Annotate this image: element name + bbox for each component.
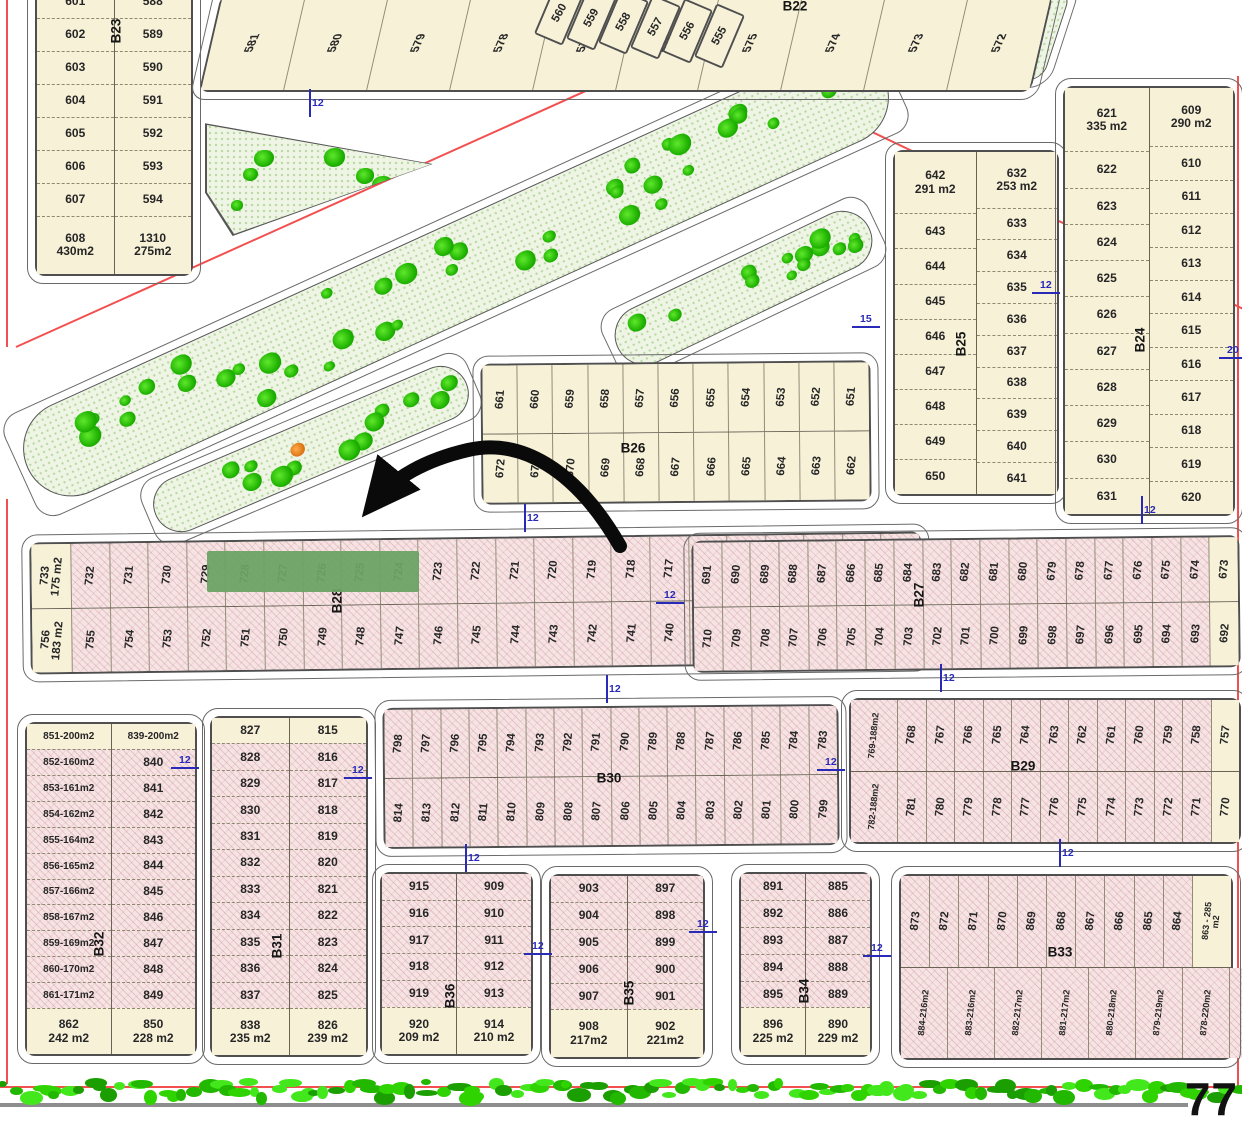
- plot-number: 690: [729, 564, 743, 584]
- plot-number: 749: [316, 627, 330, 647]
- plot-748: 748: [341, 605, 380, 669]
- plot-901: 901: [628, 983, 704, 1010]
- plot-number: 870: [996, 911, 1010, 931]
- plot-853: 853-161m2: [27, 775, 111, 801]
- dimension-label: 12: [352, 764, 364, 776]
- plot-column: 5885895905915925935941310 275m2: [114, 0, 192, 274]
- dimension-line: [940, 664, 942, 692]
- tree-icon: [831, 241, 848, 258]
- dimension-label: 12: [1144, 504, 1156, 516]
- block-B33: 873872871870869868867866865864863 - 285 …: [899, 874, 1233, 1060]
- plot-832: 832: [212, 849, 289, 875]
- plot-828: 828: [212, 743, 289, 769]
- plot-870: 870: [988, 876, 1017, 967]
- plot-694: 694: [1152, 602, 1181, 666]
- plot-881: 881-217m2: [1041, 968, 1088, 1059]
- plot-673: 673: [1209, 537, 1238, 601]
- plot-number: 872: [937, 911, 951, 931]
- plot-685: 685: [864, 541, 893, 605]
- plot-number: 789: [646, 732, 660, 752]
- dimension-line: [1032, 292, 1060, 294]
- plot-number: 697: [1074, 625, 1088, 645]
- plot-number: 795: [476, 733, 490, 753]
- plot-851: 851-200m2: [27, 724, 111, 749]
- hedge-foliage: [841, 1084, 854, 1091]
- plot-746: 746: [418, 604, 457, 668]
- tree-icon: [640, 173, 665, 197]
- plot-701: 701: [951, 604, 980, 668]
- plot-645: 645: [895, 284, 976, 319]
- plot-779: 779: [954, 772, 983, 843]
- plot-798: 798: [384, 710, 412, 778]
- plot-761: 761: [1097, 700, 1126, 771]
- plot-643: 643: [895, 213, 976, 248]
- hedge-foliage: [879, 1081, 894, 1095]
- plot-702: 702: [923, 605, 952, 669]
- plot-number: 659: [563, 389, 577, 409]
- plot-914: 914 210 m2: [457, 1007, 531, 1054]
- dimension-line: [689, 931, 717, 933]
- plot-782: 782-188m2: [851, 772, 897, 843]
- plot-839: 839-200m2: [112, 724, 196, 749]
- plot-number: 679: [1045, 561, 1059, 581]
- plot-776: 776: [1040, 772, 1069, 843]
- plot-623: 623: [1065, 188, 1149, 224]
- plot-628: 628: [1065, 369, 1149, 405]
- plot-number: 654: [739, 387, 753, 407]
- plot-number: 759: [1161, 725, 1175, 745]
- plot-number: 560: [550, 2, 570, 25]
- hedge-foliage: [404, 1084, 415, 1099]
- plot-number: 691: [701, 564, 715, 584]
- tree-icon: [666, 306, 684, 323]
- plot-number: 667: [669, 457, 683, 477]
- plot-757: 757: [1211, 700, 1240, 771]
- plot-number: 776: [1047, 797, 1061, 817]
- plot-number: 863 - 285 m2: [1201, 901, 1224, 941]
- plot-788: 788: [667, 707, 696, 775]
- plot-862: 862 242 m2: [27, 1008, 111, 1054]
- plot-687: 687: [807, 541, 836, 605]
- plot-number: 744: [509, 625, 523, 645]
- tree-icon: [372, 275, 396, 298]
- plot-660: 660: [517, 365, 553, 433]
- plot-833: 833: [212, 876, 289, 902]
- plot-617: 617: [1150, 380, 1234, 413]
- plot-631: 631: [1065, 478, 1149, 514]
- plot-657: 657: [622, 364, 658, 432]
- dimension-line: [606, 675, 608, 703]
- plot-number: 559: [582, 6, 602, 29]
- plot-number: 794: [505, 733, 519, 753]
- plot-758: 758: [1182, 700, 1211, 771]
- plot-number: 701: [959, 626, 973, 646]
- plot-847: 847: [112, 930, 196, 956]
- plot-number: 669: [599, 457, 613, 477]
- plot-768: 768: [897, 700, 926, 771]
- plot-813: 813: [412, 778, 441, 846]
- plot-678: 678: [1065, 539, 1094, 603]
- hedge-foliage: [473, 1092, 484, 1101]
- plot-808: 808: [554, 777, 583, 845]
- dimension-line: [852, 326, 880, 328]
- plot-799: 799: [809, 775, 838, 843]
- plot-838: 838 235 m2: [212, 1008, 289, 1055]
- plot-664: 664: [764, 432, 800, 500]
- plot-706: 706: [808, 606, 837, 670]
- plot-number: 696: [1103, 625, 1117, 645]
- plot-column: 915916917918919920 209 m2: [382, 874, 456, 1054]
- plot-801: 801: [752, 776, 781, 844]
- plot-number: 879-219m2: [1152, 989, 1166, 1036]
- plot-754: 754: [110, 608, 149, 672]
- hedge-foliage: [536, 1079, 553, 1085]
- plot-772: 772: [1154, 772, 1183, 843]
- plot-831: 831: [212, 823, 289, 849]
- plot-612: 612: [1150, 213, 1234, 246]
- plot-number: 806: [619, 801, 633, 821]
- tree-icon: [653, 196, 669, 211]
- plot-number: 784: [788, 730, 802, 750]
- plot-857: 857-166m2: [27, 879, 111, 905]
- plot-896: 896 225 m2: [741, 1007, 805, 1055]
- block-label-B23: B23: [109, 19, 124, 44]
- plot-845: 845: [112, 879, 196, 905]
- plot-number: 778: [990, 797, 1004, 817]
- dimension-label: 12: [825, 756, 837, 768]
- plot-number: 761: [1104, 725, 1118, 745]
- plot-647: 647: [895, 354, 976, 389]
- plot-869: 869: [1017, 876, 1046, 967]
- street-number-label: 77: [1185, 1072, 1238, 1124]
- plot-792: 792: [553, 708, 582, 776]
- plot-number: 707: [787, 628, 801, 648]
- tree-icon: [118, 394, 133, 408]
- plot-number: 790: [618, 732, 632, 752]
- plot-644: 644: [895, 248, 976, 283]
- plot-number: 793: [533, 732, 547, 752]
- plot-641: 641: [977, 462, 1058, 494]
- plot-number: 756 183 m2: [38, 620, 66, 661]
- plot-636: 636: [977, 303, 1058, 335]
- plot-row: 661660659658657656655654653652651: [482, 362, 869, 433]
- plot-number: 652: [810, 387, 824, 407]
- plot-743: 743: [534, 602, 573, 666]
- plot-834: 834: [212, 902, 289, 928]
- hedge-foliage: [589, 1082, 608, 1091]
- plot-number: 743: [547, 624, 561, 644]
- plot-667: 667: [658, 433, 694, 501]
- plot-614: 614: [1150, 280, 1234, 313]
- plot-655: 655: [693, 364, 729, 432]
- plot-691: 691: [693, 543, 721, 607]
- tree-icon: [324, 148, 345, 166]
- tree-icon: [320, 287, 334, 301]
- hedge-foliage: [239, 1078, 258, 1086]
- dimension-label: 12: [664, 589, 676, 601]
- plot-786: 786: [723, 707, 752, 775]
- plot-number: 705: [845, 627, 859, 647]
- tree-icon: [512, 248, 539, 274]
- plot-893: 893: [741, 927, 805, 954]
- plot-790: 790: [610, 708, 639, 776]
- plot-588: 588: [115, 0, 192, 18]
- block-B36: 915916917918919920 209 m2909910911912913…: [380, 872, 533, 1056]
- plot-number: 868: [1054, 911, 1068, 931]
- plot-column: 851-200m2852-160m2853-161m2854-162m2855-…: [27, 724, 111, 1054]
- plot-number: 866: [1113, 911, 1127, 931]
- plot-895: 895: [741, 981, 805, 1008]
- plot-number: 710: [701, 629, 715, 649]
- plot-number: 746: [432, 626, 446, 646]
- plot-710: 710: [694, 607, 722, 671]
- plot-column: 839-200m28408418428438448458468478488498…: [111, 724, 196, 1054]
- plot-number: 699: [1017, 626, 1031, 646]
- plot-872: 872: [929, 876, 958, 967]
- block-B27: 6916906896886876866856846836826816806796…: [691, 535, 1240, 673]
- dimension-line: [1059, 839, 1061, 867]
- plot-873: 873: [901, 876, 929, 967]
- plot-775: 775: [1068, 772, 1097, 843]
- plot-755: 755: [71, 608, 110, 672]
- block-B34: 891892893894895896 225 m2885886887888889…: [739, 872, 872, 1057]
- hedge-foliage: [144, 1090, 157, 1105]
- block-B29: 769-188m27687677667657647637627617607597…: [849, 698, 1241, 844]
- dimension-label: 12: [312, 97, 324, 109]
- plot-number: 723: [431, 561, 445, 581]
- plot-number: 780: [933, 797, 947, 817]
- tree-icon: [615, 202, 643, 229]
- plot-885: 885: [806, 874, 870, 900]
- plot-number: 766: [962, 725, 976, 745]
- plot-648: 648: [895, 389, 976, 424]
- plot-846: 846: [112, 904, 196, 930]
- plot-639: 639: [977, 398, 1058, 430]
- plot-651: 651: [833, 362, 869, 430]
- block-label-B35: B35: [622, 981, 637, 1006]
- hedge-foliage: [328, 1087, 344, 1094]
- plot-number: 581: [243, 34, 264, 53]
- plot-605: 605: [37, 117, 114, 150]
- plot-861: 861-171m2: [27, 982, 111, 1008]
- plot-878: 878-220m2: [1182, 968, 1229, 1059]
- plot-number: 661: [493, 389, 507, 409]
- plot-822: 822: [290, 902, 367, 928]
- dimension-label: 12: [179, 754, 191, 766]
- hedge-foliage: [1053, 1090, 1075, 1105]
- plot-number: 658: [598, 388, 612, 408]
- subdivision-site-plan: 77 601602603604605606607608 430m25885895…: [0, 0, 1242, 1124]
- plot-number: 741: [625, 623, 639, 643]
- block-label-B28: B28: [330, 589, 345, 614]
- plot-607: 607: [37, 183, 114, 216]
- plot-629: 629: [1065, 405, 1149, 441]
- plot-819: 819: [290, 823, 367, 849]
- dimension-label: 12: [1040, 279, 1052, 291]
- plot-number: 722: [469, 561, 483, 581]
- plot-number: 656: [669, 388, 683, 408]
- plot-number: 884-216m2: [917, 989, 931, 1036]
- plot-745: 745: [457, 603, 496, 667]
- plot-number: 869: [1025, 911, 1039, 931]
- tree-icon: [329, 326, 357, 352]
- plot-number: 867: [1083, 911, 1097, 931]
- plot-row: 6916906896886876866856846836826816806796…: [693, 537, 1238, 606]
- plot-860: 860-170m2: [27, 956, 111, 982]
- plot-number: 752: [200, 628, 214, 648]
- tree-icon: [625, 311, 650, 335]
- plot-row: 782-188m27817807797787777767757747737727…: [851, 771, 1239, 843]
- plot-number: 757: [1218, 725, 1232, 745]
- plot-662: 662: [834, 431, 870, 499]
- tree-icon: [766, 116, 781, 130]
- plot-number: 758: [1190, 725, 1204, 745]
- plot-731: 731: [109, 543, 148, 607]
- plot-number: 721: [508, 560, 522, 580]
- plot-787: 787: [695, 707, 724, 775]
- plot-785: 785: [751, 707, 780, 775]
- plot-652: 652: [798, 363, 834, 431]
- plot-892: 892: [741, 900, 805, 927]
- plot-number: 730: [161, 564, 175, 584]
- plot-number: 742: [586, 624, 600, 644]
- plot-718: 718: [611, 537, 650, 601]
- plot-653: 653: [763, 363, 799, 431]
- dimension-label: 12: [697, 918, 709, 930]
- plot-number: 765: [990, 725, 1004, 745]
- plot-number: 881-217m2: [1058, 989, 1072, 1036]
- plot-number: 807: [590, 801, 604, 821]
- dimension-line: [656, 602, 684, 604]
- plot-679: 679: [1037, 539, 1066, 603]
- plot-640: 640: [977, 430, 1058, 462]
- plot-number: 664: [775, 456, 789, 476]
- dimension-label: 12: [527, 512, 539, 524]
- plot-762: 762: [1068, 700, 1097, 771]
- plot-number: 678: [1074, 560, 1088, 580]
- plot-721: 721: [495, 538, 534, 602]
- tree-icon: [256, 349, 285, 377]
- plot-number: 732: [84, 565, 98, 585]
- dimension-label: 12: [468, 852, 480, 864]
- plot-number: 880-218m2: [1105, 989, 1119, 1036]
- plot-number: 668: [634, 457, 648, 477]
- park-surface: [207, 118, 433, 234]
- plot-number: 805: [647, 801, 661, 821]
- hedge-foliage: [317, 1086, 327, 1099]
- plot-773: 773: [1125, 772, 1154, 843]
- plot-774: 774: [1097, 772, 1126, 843]
- plot-number: 681: [987, 561, 1001, 581]
- plot-899: 899: [628, 929, 704, 956]
- plot-898: 898: [628, 902, 704, 929]
- plot-750: 750: [264, 606, 303, 670]
- plot-742: 742: [573, 602, 612, 666]
- plot-812: 812: [441, 778, 470, 846]
- plot-number: 671: [529, 458, 543, 478]
- plot-821: 821: [290, 876, 367, 902]
- plot-663: 663: [799, 432, 835, 500]
- plot-697: 697: [1066, 603, 1095, 667]
- plot-number: 786: [731, 731, 745, 751]
- plot-number: 572: [989, 34, 1010, 53]
- plot-number: 770: [1218, 797, 1232, 817]
- plot-number: 882-217m2: [1011, 989, 1025, 1036]
- plot-744: 744: [496, 603, 535, 667]
- red-boundary-line: [6, 0, 8, 347]
- plot-row: 7987977967957947937927917907897887877867…: [384, 706, 837, 778]
- plot-780: 780: [926, 772, 955, 843]
- plot-865: 865: [1134, 876, 1163, 967]
- plot-number: 800: [788, 799, 802, 819]
- plot-696: 696: [1095, 603, 1124, 667]
- tree-icon: [785, 269, 800, 283]
- plot-632: 632 253 m2: [977, 152, 1058, 208]
- hedge-foliage: [421, 1079, 431, 1085]
- plot-740: 740: [650, 601, 689, 665]
- plot-number: 666: [705, 457, 719, 477]
- plot-708: 708: [750, 606, 779, 670]
- tree-icon: [428, 388, 453, 412]
- tree-icon: [681, 163, 696, 177]
- plot-747: 747: [380, 604, 419, 668]
- dimension-label: 12: [1062, 847, 1074, 859]
- plot-number: 762: [1076, 725, 1090, 745]
- plot-row: 884-216m2883-216m2882-217m2881-217m2880-…: [901, 967, 1231, 1059]
- plot-number: 653: [774, 387, 788, 407]
- tree-icon: [391, 259, 420, 287]
- plot-number: 775: [1076, 797, 1090, 817]
- plot-number: 783: [816, 730, 830, 750]
- plot-column: 909910911912913914 210 m2: [456, 874, 531, 1054]
- plot-634: 634: [977, 239, 1058, 271]
- plot-891: 891: [741, 874, 805, 900]
- plot-number: 772: [1161, 797, 1175, 817]
- plot-number: 803: [703, 800, 717, 820]
- plot-910: 910: [457, 900, 531, 927]
- tree-icon: [243, 168, 258, 181]
- plot-886: 886: [806, 900, 870, 927]
- plot-781: 781: [897, 772, 926, 843]
- dimension-line: [344, 777, 372, 779]
- plot-797: 797: [412, 709, 441, 777]
- plot-863: 863 - 285 m2: [1192, 876, 1231, 967]
- plot-765: 765: [983, 700, 1012, 771]
- plot-number: 745: [470, 625, 484, 645]
- plot-707: 707: [779, 606, 808, 670]
- plot-815: 815: [290, 718, 367, 743]
- block-label-B29: B29: [1011, 759, 1036, 774]
- tree-icon: [665, 130, 695, 158]
- plot-number: 682: [959, 562, 973, 582]
- plot-814: 814: [385, 779, 413, 847]
- plot-659: 659: [552, 365, 588, 433]
- plot-number: 694: [1160, 624, 1174, 644]
- plot-920: 920 209 m2: [382, 1007, 456, 1054]
- plot-856: 856-165m2: [27, 853, 111, 879]
- block-label-B25: B25: [954, 332, 969, 357]
- plot-916: 916: [382, 900, 456, 927]
- plot-830: 830: [212, 796, 289, 822]
- plot-769: 769-188m2: [851, 700, 897, 771]
- plot-917: 917: [382, 926, 456, 953]
- plot-number: 720: [547, 560, 561, 580]
- plot-number: 675: [1160, 560, 1174, 580]
- plot-624: 624: [1065, 224, 1149, 260]
- hedge-foliage: [176, 1089, 187, 1101]
- plot-number: 673: [1217, 559, 1231, 579]
- tree-icon: [219, 459, 243, 481]
